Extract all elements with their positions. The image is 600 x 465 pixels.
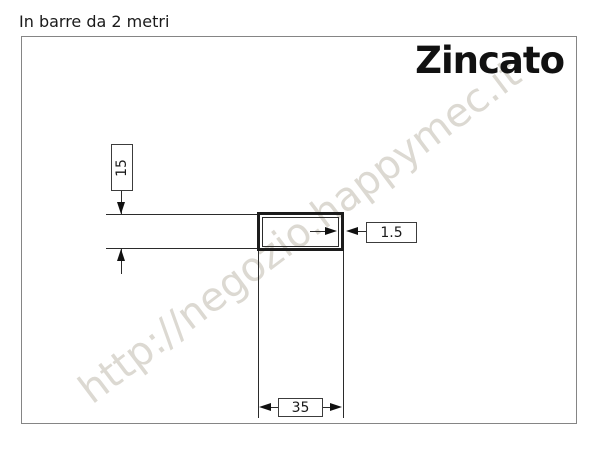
height-extension-line-top (106, 214, 259, 215)
arrow-left-icon (259, 403, 271, 411)
bar-length-note: In barre da 2 metri (19, 12, 169, 31)
height-dim-box: 15 (111, 144, 133, 191)
thickness-dim-value: 1.5 (380, 225, 402, 241)
arrow-down-icon (117, 202, 125, 214)
width-extension-line-left (258, 251, 259, 418)
width-dim-box: 35 (278, 398, 323, 417)
arrow-right-icon (330, 403, 342, 411)
height-extension-line-bottom (106, 248, 259, 249)
arrow-up-icon (117, 249, 125, 261)
height-dim-value: 15 (114, 159, 130, 177)
width-dim-line-left (270, 407, 278, 408)
width-dim-value: 35 (292, 400, 310, 416)
width-extension-line-right (343, 251, 344, 418)
finish-label: Zincato (415, 39, 564, 82)
thickness-dim-box: 1.5 (366, 222, 417, 243)
product-drawing-page: { "header": { "note": "In barre da 2 met… (0, 0, 600, 465)
arrow-right-icon (325, 227, 337, 235)
arrow-left-icon (346, 227, 358, 235)
